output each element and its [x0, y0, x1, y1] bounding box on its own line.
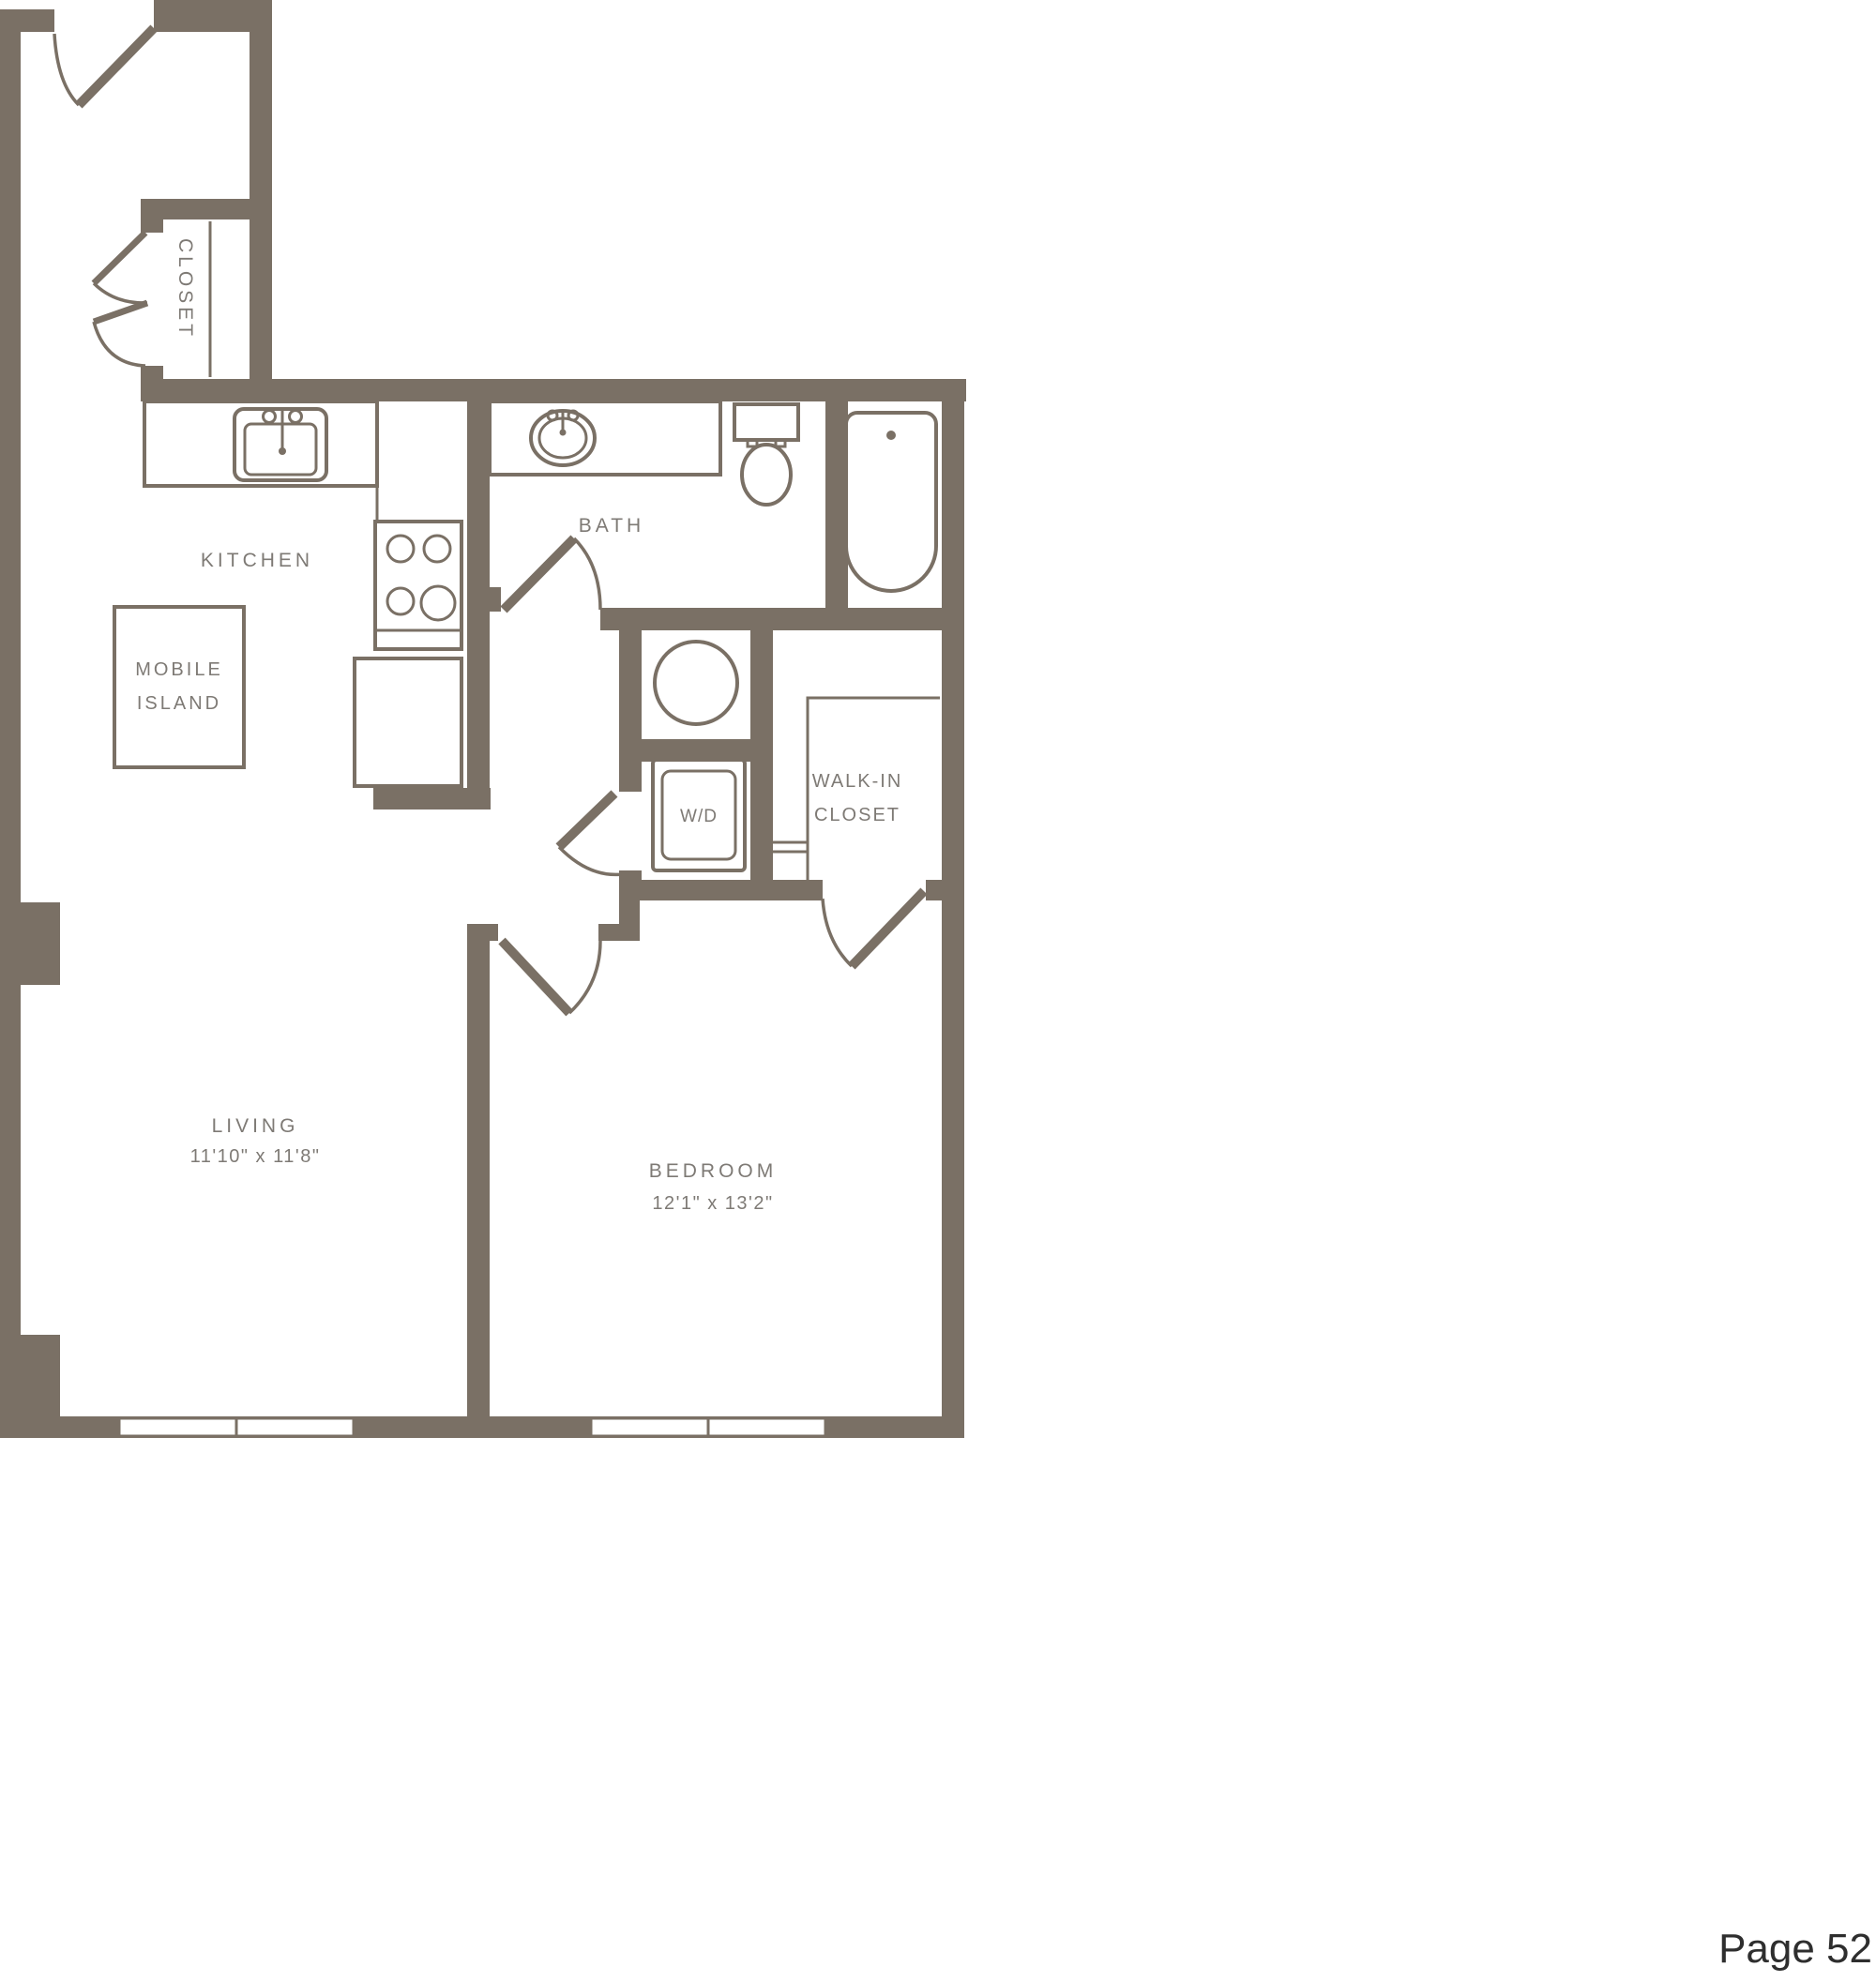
label-living-dimensions: 11'10" x 11'8" — [190, 1146, 321, 1167]
wall-bath-door-jamb — [467, 587, 501, 612]
entry-door-arc-icon — [54, 34, 79, 105]
page-number: Page 52 — [1718, 1926, 1872, 1973]
label-walk-in-closet-line1: WALK-IN — [812, 771, 903, 792]
label-wd: W/D — [680, 807, 718, 826]
wall-laundry-bottom — [619, 880, 823, 900]
wall-hall-right — [250, 0, 272, 401]
wall-closet-top-stub — [141, 199, 163, 233]
floor-plan-page: CLOSET KITCHEN MOBILE ISLAND BATH W/D WA… — [0, 0, 1876, 1982]
wall-left — [0, 9, 21, 1438]
wic-door-leaf — [852, 891, 924, 966]
wall-wic-door-jamb — [926, 880, 944, 900]
bifold-leaf-1 — [94, 233, 145, 283]
closet-bifold-door — [94, 233, 147, 366]
wall-bedroom-door-jamb-right — [598, 924, 640, 941]
entry-door-leaf — [79, 28, 154, 105]
bath-door — [504, 538, 600, 610]
label-walk-in-closet-line2: CLOSET — [814, 805, 900, 825]
label-kitchen: KITCHEN — [201, 550, 313, 571]
bedroom-window-2 — [708, 1418, 825, 1436]
wall-divider-lower — [467, 924, 490, 1438]
label-mobile-island-line1: MOBILE — [135, 659, 223, 680]
label-bath: BATH — [579, 515, 644, 537]
bedroom-door-leaf — [502, 941, 569, 1013]
kitchen-sink-icon — [234, 409, 326, 480]
bath-vanity-outline — [490, 401, 720, 475]
entry-door — [54, 28, 154, 105]
label-closet: CLOSET — [174, 238, 196, 340]
label-bedroom: BEDROOM — [649, 1160, 778, 1182]
hall-door-arc-icon — [559, 847, 623, 874]
bath-sink-icon — [531, 411, 595, 465]
bath-door-arc-icon — [574, 538, 600, 610]
bath-door-leaf — [504, 538, 574, 610]
bedroom-door-arc-icon — [569, 941, 600, 1013]
wall-left-pillar-1 — [0, 902, 60, 985]
bedroom-window-1 — [591, 1418, 708, 1436]
wic-door-arc-icon — [823, 899, 852, 966]
mobile-island-outline — [114, 607, 244, 767]
wall-wic-left — [750, 608, 773, 882]
water-heater-icon — [655, 642, 737, 724]
bedroom-door — [502, 941, 600, 1013]
bifold-leaf-2 — [94, 303, 147, 322]
refrigerator-icon — [355, 658, 461, 786]
bathtub-icon — [846, 413, 936, 591]
floor-plan: CLOSET KITCHEN MOBILE ISLAND BATH W/D WA… — [0, 0, 1876, 1982]
wall-right — [942, 379, 964, 1438]
hall-door — [559, 794, 623, 874]
wall-hall-east-upper — [619, 608, 642, 792]
stove-icon — [375, 522, 461, 649]
walk-in-closet-door — [823, 891, 924, 966]
wall-bath-bottom — [600, 608, 942, 630]
label-bedroom-dimensions: 12'1" x 13'2" — [652, 1193, 773, 1214]
living-window-1 — [119, 1418, 236, 1436]
bifold-arc-1 — [94, 283, 147, 303]
label-living: LIVING — [212, 1115, 299, 1137]
wall-kitchen-stub — [373, 788, 491, 809]
toilet-icon — [734, 404, 798, 505]
walls — [0, 0, 966, 1438]
label-mobile-island-line2: ISLAND — [137, 693, 221, 714]
bifold-arc-2 — [94, 322, 145, 366]
living-window-2 — [236, 1418, 354, 1436]
hall-door-leaf — [559, 794, 614, 847]
